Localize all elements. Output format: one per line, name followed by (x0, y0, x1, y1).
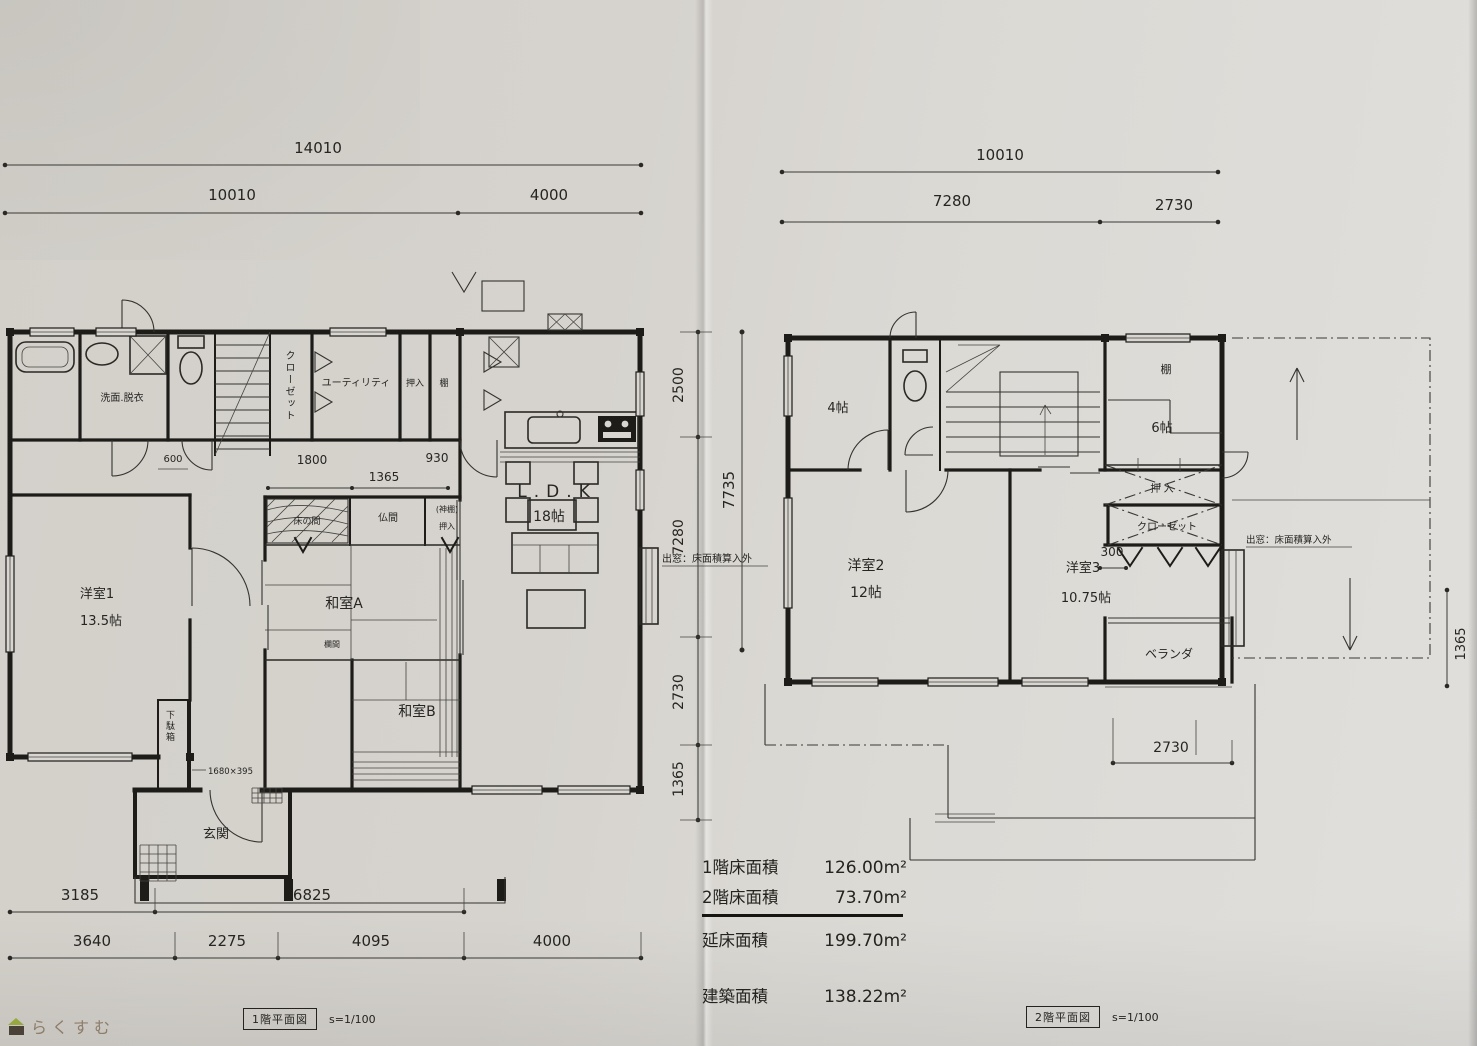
room-label-tokonoma: 床の間 (293, 515, 320, 527)
room-label-yoshitsu1: 洋室1 (80, 586, 114, 602)
stove-icon (598, 416, 636, 442)
dim-f1-1800: 1800 (297, 453, 328, 467)
dim-f2-10010: 10010 (976, 146, 1024, 164)
dim-f2-7735: 7735 (720, 471, 738, 509)
room-label-yoshitsu1-size: 13.5帖 (80, 614, 122, 629)
room-label-washitsu-a: 和室A (325, 595, 363, 612)
roof-outline-dashdot (1232, 338, 1430, 658)
floor1-scale: s=1/100 (329, 1013, 376, 1026)
floor2-wall-posts (784, 334, 1226, 686)
room-label-ranma: 欄間 (324, 639, 340, 649)
floor2-bottom-dimensions: 2730 1365 (1111, 588, 1469, 766)
room-label-yoshitsu2: 洋室2 (848, 557, 885, 574)
room-label-ldk: L.D.K (517, 482, 597, 502)
area-row-building: 建築面積 138.22m² (702, 983, 907, 1007)
dim-f1-600: 600 (163, 454, 182, 465)
floor2-scale: s=1/100 (1112, 1011, 1159, 1024)
dim-f2-2730-top: 2730 (1155, 196, 1193, 214)
room-label-oshiire-f2: 押 入 (1150, 482, 1173, 495)
first-floor-footprint-outline (765, 684, 1255, 860)
kitchen-sink-icon (528, 417, 580, 443)
area-label-building: 建築面積 (702, 983, 768, 1007)
house-logo-icon (8, 1018, 25, 1035)
floor1-top-dimensions: 14010 10010 4000 (3, 139, 644, 215)
room-label-getabako: 下駄箱 (163, 710, 176, 784)
room-label-tana-f2: 棚 (1161, 362, 1172, 376)
area-row-2f: 2階床面積 73.70m² (702, 884, 907, 908)
dim-f1-3185: 3185 (61, 886, 99, 904)
stairs-icon-f1 (215, 332, 270, 455)
room-label-utility: ユーティリティ (322, 378, 391, 389)
area-value-1f: 126.00m² (824, 858, 907, 878)
area-value-2f: 73.70m² (835, 888, 907, 908)
floor1-inner-dimensions: 600 1800 930 1365 (158, 451, 450, 490)
kitchen-counter-icon (500, 411, 640, 462)
floor1-plan-name: 1階平面図 (243, 1008, 317, 1030)
room-label-yoshitsu3: 洋室3 (1066, 560, 1100, 576)
room-label-butsuma: 仏間 (378, 512, 398, 524)
area-label-total: 延床面積 (702, 927, 768, 951)
room-label-closet-f2: クローゼット (1137, 521, 1197, 533)
floor-area-table: 1階床面積 126.00m² 2階床面積 73.70m² 延床面積 199.70… (702, 854, 907, 1013)
rakusumu-watermark: らくすむ (8, 1014, 115, 1038)
coffee-table-icon (527, 590, 585, 628)
room-label-senmen: 洗面.脱衣 (100, 391, 143, 404)
dim-f1-4000-bottom: 4000 (533, 932, 571, 950)
dim-f1-4000-top: 4000 (530, 186, 568, 204)
floor2-walls (788, 338, 1232, 682)
floor2-plan-name: 2階平面図 (1026, 1006, 1100, 1028)
room-label-veranda: ベランダ (1145, 646, 1193, 661)
dim-f1-4095: 4095 (352, 932, 390, 950)
room-label-ldk-size: 18帖 (533, 509, 565, 525)
dim-f1-2275: 2275 (208, 932, 246, 950)
roof-slope-arrow-up (1290, 368, 1304, 440)
dim-f2-2730: 2730 (1153, 740, 1189, 756)
closet-dashdot-f2 (1108, 505, 1222, 566)
exterior-vent-icon (452, 272, 524, 311)
dim-f1-7280: 7280 (671, 519, 687, 555)
washbasin-icon (86, 343, 118, 365)
dim-f1-14010: 14010 (294, 139, 342, 157)
room-label-washitsu-b: 和室B (398, 703, 436, 720)
bay-window-f1 (640, 548, 658, 624)
watermark-text: らくすむ (31, 1014, 115, 1038)
floor2-title-tag: 2階平面図 s=1/100 (1026, 1006, 1159, 1028)
area-value-total: 199.70m² (824, 931, 907, 951)
stairs-icon-f2 (946, 345, 1100, 456)
bathtub-icon (16, 342, 74, 372)
dim-f1-3640: 3640 (73, 932, 111, 950)
room-label-oshiire-f1: 押入 (406, 377, 424, 389)
toilet-icon-f2 (903, 350, 927, 401)
floor1-title-tag: 1階平面図 s=1/100 (243, 1008, 376, 1030)
center-vertical-dimensions: 2500 7280 2730 1365 7735 出窓：床面積算入外 (662, 330, 768, 823)
room-label-genkan: 玄関 (203, 827, 229, 842)
bay-window-note-f1: 出窓：床面積算入外 (662, 552, 752, 565)
area-value-building: 138.22m² (824, 987, 907, 1007)
area-table-sum-line (702, 914, 903, 917)
windows-f2 (784, 334, 1244, 687)
bay-window-note-f2: 出窓：床面積算入外 (1246, 534, 1332, 546)
area-row-total: 延床面積 199.70m² (702, 927, 907, 951)
room-label-closet-f1: クローゼット (281, 350, 296, 440)
room-label-kamidana: (神棚) (436, 504, 458, 514)
area-row-1f: 1階床面積 126.00m² (702, 854, 907, 878)
refrigerator-icon (489, 337, 519, 367)
room-label-kamidana-oshiire: 押入 (439, 521, 455, 531)
dim-f1-1365: 1365 (369, 470, 400, 484)
dim-getabako-size: 1680×395 (208, 767, 253, 777)
dim-f2-300: 300 (1101, 545, 1124, 559)
room-label-yoshitsu3-size: 10.75帖 (1061, 591, 1111, 606)
floor2-top-dimensions: 10010 7280 2730 (780, 146, 1221, 224)
dim-f1-930: 930 (426, 451, 449, 465)
dim-f1-2730: 2730 (671, 674, 687, 710)
room-label-yoshitsu2-size: 12帖 (850, 585, 882, 601)
toilet-icon-f1 (178, 336, 204, 384)
sofa-icon (512, 533, 598, 573)
dim-f1-10010: 10010 (208, 186, 256, 204)
room-label-tana-f1: 棚 (439, 377, 448, 389)
floor1-bottom-dimensions: 3185 6825 3640 2275 4095 4000 (8, 886, 644, 960)
roof-slope-arrow-down (1343, 578, 1357, 650)
sliding-door-marks (262, 500, 463, 655)
area-label-2f: 2階床面積 (702, 884, 779, 908)
dim-f2-7280: 7280 (933, 192, 971, 210)
area-label-1f: 1階床面積 (702, 854, 779, 878)
dim-f1-6825: 6825 (293, 886, 331, 904)
dim-f1-2500: 2500 (671, 367, 687, 403)
room-label-4jou: 4帖 (827, 401, 848, 416)
dim-f2-1365: 1365 (1454, 627, 1469, 660)
room-label-6jou: 6帖 (1151, 421, 1172, 436)
dim-f1-1365: 1365 (671, 761, 687, 797)
range-hood-vent-icon (548, 314, 582, 330)
washing-machine-icon (130, 336, 166, 374)
